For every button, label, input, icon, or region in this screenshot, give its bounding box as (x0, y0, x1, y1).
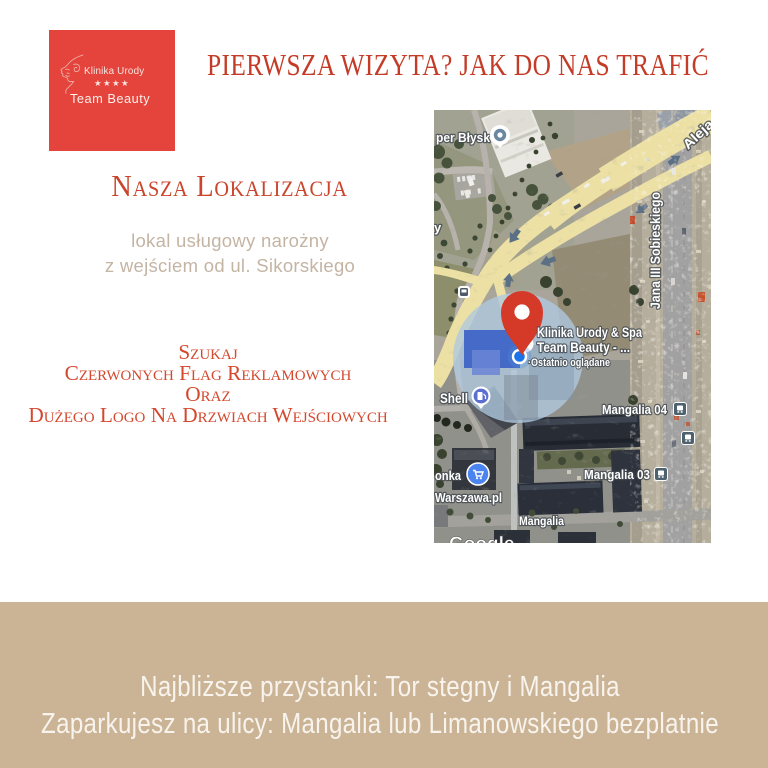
svg-text:y: y (434, 220, 442, 235)
svg-text:per Błysk: per Błysk (436, 130, 491, 145)
svg-text:Mangalia: Mangalia (519, 514, 564, 528)
svg-text:onka: onka (435, 468, 462, 483)
svg-text:Google: Google (449, 534, 514, 543)
svg-text:Klinika Urody & Spa: Klinika Urody & Spa (537, 325, 642, 340)
svg-text:Shell: Shell (440, 390, 468, 406)
svg-text:Jana III Sobieskiego: Jana III Sobieskiego (648, 192, 663, 309)
svg-text:·Ostatnio oglądane: ·Ostatnio oglądane (528, 357, 610, 369)
svg-text:Mangalia 03: Mangalia 03 (584, 467, 650, 482)
svg-text:Mangalia 04: Mangalia 04 (602, 402, 668, 417)
svg-text:Warszawa.pl: Warszawa.pl (435, 490, 502, 505)
svg-text:Team Beauty - ...: Team Beauty - ... (537, 340, 630, 355)
